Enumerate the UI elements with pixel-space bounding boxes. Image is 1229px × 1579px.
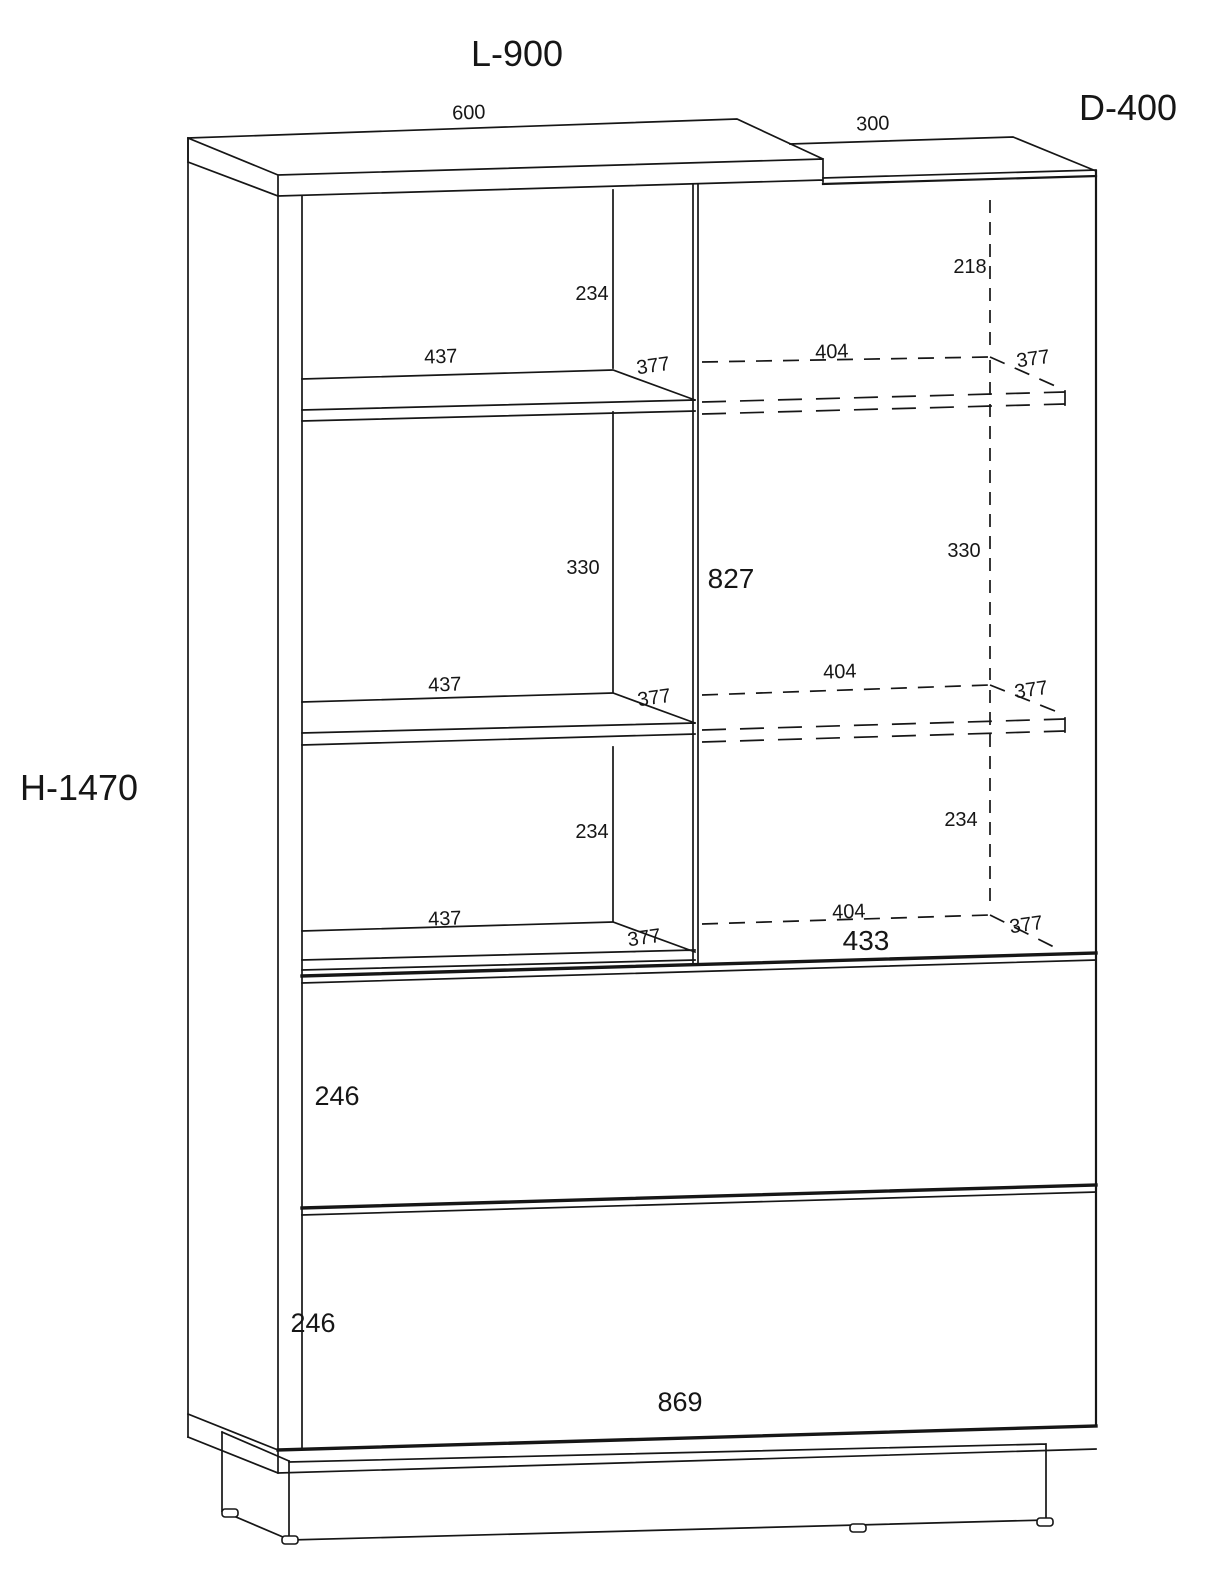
- dim-drawer2-height: 246: [290, 1308, 335, 1338]
- shelf-2: [302, 693, 695, 745]
- dim-hidden-shelf3-depth: 377: [1008, 912, 1044, 938]
- dim-right-opening-width: 433: [843, 925, 890, 956]
- dim-door-opening-height: 827: [708, 563, 755, 594]
- dim-top-right-width: 300: [856, 112, 890, 135]
- top-panel-left: [188, 119, 823, 196]
- hidden-shelves-dashed: [702, 200, 1065, 949]
- dim-hidden-shelf2-depth: 377: [1013, 677, 1049, 703]
- dim-left-shelf1-width: 437: [424, 345, 458, 368]
- drawer-divider: [302, 1185, 1096, 1208]
- dim-drawer-width: 869: [657, 1387, 702, 1417]
- dim-drawer1-height: 246: [314, 1081, 359, 1111]
- technical-drawing-page: L-900 D-400 H-1470 600 300 234 330 234 4…: [0, 0, 1229, 1579]
- top-panel-right: [790, 137, 1096, 184]
- dim-overall-depth: D-400: [1079, 87, 1177, 128]
- cabinet-outline: [188, 138, 1096, 1473]
- hidden-shelf-2-back: [702, 685, 1060, 713]
- hidden-shelf-1-front: [702, 392, 1065, 414]
- dim-hidden-shelf2-width: 404: [823, 660, 857, 683]
- foot-back-left: [222, 1509, 238, 1517]
- dim-right-gap-bottom: 234: [944, 809, 977, 831]
- dim-left-shelf3-depth: 377: [626, 925, 662, 951]
- dim-left-gap-middle: 330: [566, 557, 599, 579]
- dim-hidden-shelf3-width: 404: [832, 900, 866, 923]
- top-panel-right-lines: [790, 137, 1096, 178]
- divider-double-line: [693, 184, 698, 965]
- cabinet-technical-drawing: L-900 D-400 H-1470 600 300 234 330 234 4…: [0, 0, 1229, 1579]
- dim-hidden-shelf1-depth: 377: [1015, 346, 1051, 372]
- center-divider: [613, 184, 698, 965]
- dim-hidden-shelf1-width: 404: [815, 340, 849, 363]
- hidden-shelf-1-back: [702, 357, 1062, 389]
- dim-overall-height: H-1470: [20, 767, 138, 808]
- dim-left-shelf1-depth: 377: [635, 353, 671, 379]
- plinth-front: [289, 1444, 1046, 1540]
- dim-right-gap-middle: 330: [947, 540, 980, 562]
- left-shelves: [302, 370, 695, 970]
- dim-left-gap-top: 234: [575, 283, 608, 305]
- dim-left-shelf2-width: 437: [428, 673, 462, 696]
- dim-left-shelf2-depth: 377: [636, 685, 672, 711]
- dim-overall-length: L-900: [471, 33, 563, 74]
- foot-front-center: [850, 1524, 866, 1532]
- shelf-1: [302, 370, 695, 421]
- dim-top-left-width: 600: [452, 101, 486, 124]
- bottom-left-miters: [188, 1414, 278, 1473]
- top-panel-left-lines: [188, 119, 823, 196]
- dim-left-gap-bottom: 234: [575, 821, 608, 843]
- foot-front-right: [1037, 1518, 1053, 1526]
- dim-right-top-gap: 218: [953, 256, 986, 278]
- plinth-left-side: [222, 1432, 290, 1540]
- dim-left-shelf3-width: 437: [428, 907, 462, 930]
- foot-front-left: [282, 1536, 298, 1544]
- hidden-shelf-2-front: [702, 719, 1065, 742]
